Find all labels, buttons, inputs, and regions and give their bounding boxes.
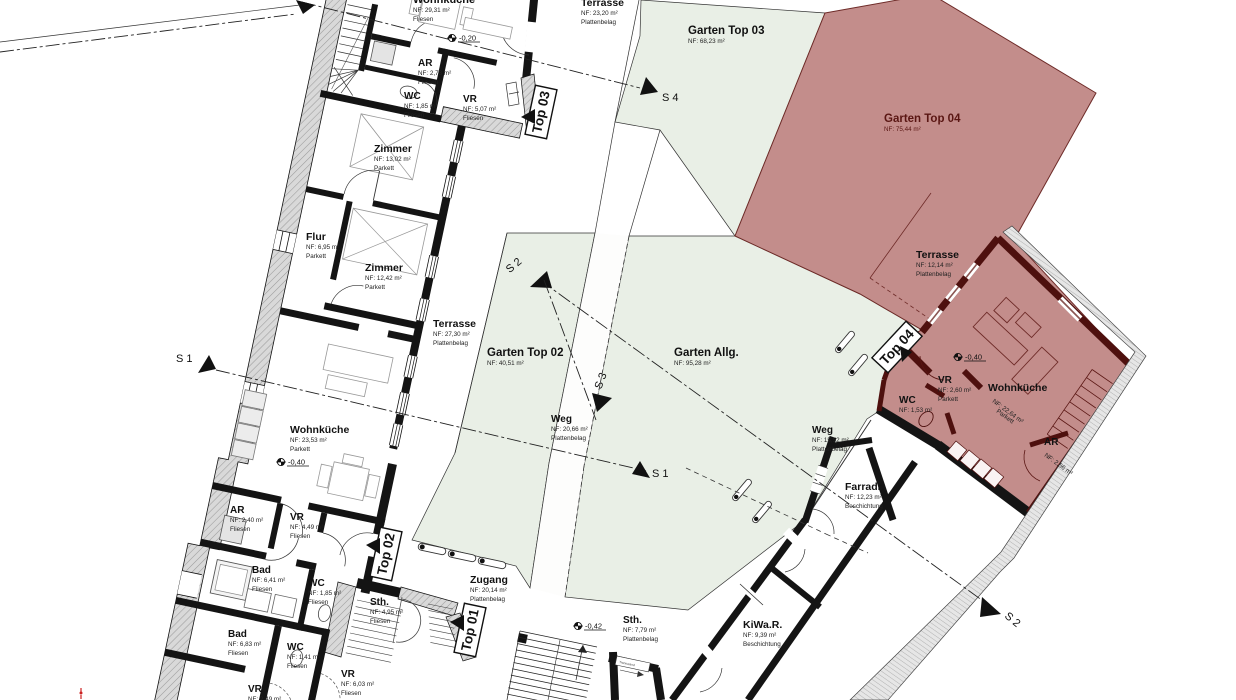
svg-text:NF: 2,49 m²: NF: 2,49 m² [248, 696, 281, 700]
svg-text:Plattenbelag: Plattenbelag [916, 271, 952, 278]
svg-text:Fliesen: Fliesen [252, 586, 273, 593]
svg-text:Fliesen: Fliesen [404, 112, 425, 119]
svg-text:NF: 12,14 m²: NF: 12,14 m² [916, 262, 953, 269]
svg-text:WC: WC [404, 91, 421, 102]
svg-text:Wohnküche: Wohnküche [413, 0, 475, 6]
svg-text:VR: VR [463, 94, 478, 105]
svg-text:NF: 20,66 m²: NF: 20,66 m² [551, 426, 588, 433]
svg-text:Terrasse: Terrasse [916, 249, 959, 261]
svg-text:NF: 23,53 m²: NF: 23,53 m² [290, 437, 327, 444]
svg-text:Fliesen: Fliesen [308, 599, 329, 606]
svg-text:Fliesen: Fliesen [463, 115, 484, 122]
svg-text:WC: WC [899, 395, 916, 406]
svg-text:Weg: Weg [812, 425, 833, 436]
svg-text:NF: 12,23 m²: NF: 12,23 m² [845, 494, 882, 501]
svg-text:NF: 6,03 m²: NF: 6,03 m² [341, 681, 374, 688]
svg-text:NF: 4,95 m²: NF: 4,95 m² [370, 609, 403, 616]
svg-text:Fliesen: Fliesen [341, 690, 362, 697]
svg-text:NF: 6,95 m²: NF: 6,95 m² [306, 244, 339, 251]
svg-text:Zugang: Zugang [470, 574, 508, 586]
svg-text:Plattenbelag: Plattenbelag [812, 446, 848, 453]
svg-text:VR: VR [341, 669, 356, 680]
svg-text:NF: 15,52 m²: NF: 15,52 m² [812, 437, 849, 444]
svg-text:Garten Top 04: Garten Top 04 [884, 113, 961, 125]
svg-text:NF: 6,83 m²: NF: 6,83 m² [228, 641, 261, 648]
svg-text:NF: 2,73 m²: NF: 2,73 m² [418, 70, 451, 77]
svg-text:NF: 1,53 m²: NF: 1,53 m² [899, 407, 932, 414]
svg-text:Wohnküche: Wohnküche [290, 424, 349, 436]
svg-text:WC: WC [308, 578, 325, 589]
svg-text:AR: AR [418, 58, 433, 69]
svg-text:Weg: Weg [551, 414, 572, 425]
svg-text:AR: AR [1044, 437, 1059, 448]
svg-text:NF: 5,07 m²: NF: 5,07 m² [463, 106, 496, 113]
svg-text:S 1: S 1 [652, 468, 669, 480]
svg-text:-0,20: -0,20 [459, 34, 476, 43]
svg-text:Garten Allg.: Garten Allg. [674, 347, 739, 359]
svg-text:Fliesen: Fliesen [290, 533, 311, 540]
svg-text:NF: 68,23 m²: NF: 68,23 m² [688, 38, 725, 45]
svg-text:NF: 1,85 m²: NF: 1,85 m² [308, 590, 341, 597]
svg-text:Beschichtung: Beschichtung [845, 503, 883, 510]
svg-text:Plattenbelag: Plattenbelag [433, 340, 469, 347]
svg-text:NF: 13,02 m²: NF: 13,02 m² [374, 156, 411, 163]
svg-text:Fliesen: Fliesen [418, 79, 439, 86]
svg-text:NF: 75,44 m²: NF: 75,44 m² [884, 126, 921, 133]
svg-text:AR: AR [230, 505, 245, 516]
svg-text:NF: 9,39 m²: NF: 9,39 m² [743, 632, 776, 639]
svg-text:Flur: Flur [306, 231, 326, 243]
svg-text:Zimmer: Zimmer [374, 143, 412, 155]
svg-text:Parkett: Parkett [938, 396, 958, 403]
svg-text:NF: 20,14 m²: NF: 20,14 m² [470, 587, 507, 594]
svg-text:NF: 95,28 m²: NF: 95,28 m² [674, 360, 711, 367]
svg-text:NF: 2,60 m²: NF: 2,60 m² [938, 387, 971, 394]
svg-text:Fliesen: Fliesen [228, 650, 249, 657]
svg-text:VR: VR [938, 375, 953, 386]
svg-text:Wohnküche: Wohnküche [988, 382, 1047, 394]
svg-text:Plattenbelag: Plattenbelag [470, 596, 506, 603]
svg-text:Fliesen: Fliesen [230, 526, 251, 533]
svg-text:-0,40: -0,40 [288, 458, 305, 467]
svg-text:-0,40: -0,40 [965, 353, 982, 362]
svg-text:Terrasse: Terrasse [581, 0, 624, 9]
svg-text:Fliesen: Fliesen [413, 16, 434, 23]
svg-text:Sth.: Sth. [370, 597, 389, 608]
svg-text:S 1: S 1 [176, 353, 193, 365]
svg-text:VR: VR [248, 684, 263, 695]
svg-text:Plattenbelag: Plattenbelag [581, 19, 617, 26]
svg-text:NF: 2,40 m²: NF: 2,40 m² [230, 517, 263, 524]
svg-text:KiWa.R.: KiWa.R. [743, 619, 782, 631]
svg-text:Parkett: Parkett [306, 253, 326, 260]
svg-text:Bad: Bad [228, 629, 247, 640]
svg-text:S 4: S 4 [662, 92, 679, 104]
svg-text:WC: WC [287, 642, 304, 653]
svg-text:Plattenbelag: Plattenbelag [551, 435, 587, 442]
svg-text:Farradr.: Farradr. [845, 481, 884, 493]
svg-text:NF: 29,31 m²: NF: 29,31 m² [413, 7, 450, 14]
svg-text:NF: 23,20 m²: NF: 23,20 m² [581, 10, 618, 17]
svg-text:Zimmer: Zimmer [365, 262, 403, 274]
svg-text:NF: 7,79 m²: NF: 7,79 m² [623, 627, 656, 634]
svg-text:Plattenbelag: Plattenbelag [623, 636, 659, 643]
svg-text:NF: 1,41 m²: NF: 1,41 m² [287, 654, 320, 661]
svg-text:NF: 4,49 m²: NF: 4,49 m² [290, 524, 323, 531]
svg-text:Fliesen: Fliesen [287, 663, 308, 670]
svg-text:NF: 12,42 m²: NF: 12,42 m² [365, 275, 402, 282]
svg-text:Beschichtung: Beschichtung [743, 641, 781, 648]
svg-text:Fliesen: Fliesen [370, 618, 391, 625]
svg-text:Bad: Bad [252, 565, 271, 576]
svg-text:Garten Top 03: Garten Top 03 [688, 25, 764, 37]
svg-text:NF: 1,85 m²: NF: 1,85 m² [404, 103, 437, 110]
svg-text:NF: 40,51 m²: NF: 40,51 m² [487, 360, 524, 367]
svg-text:Parkett: Parkett [365, 284, 385, 291]
svg-text:VR: VR [290, 512, 305, 523]
svg-text:NF: 6,41 m²: NF: 6,41 m² [252, 577, 285, 584]
svg-text:Parkett: Parkett [374, 165, 394, 172]
svg-text:Garten Top 02: Garten Top 02 [487, 347, 563, 359]
svg-text:Terrasse: Terrasse [433, 318, 476, 330]
svg-text:NF: 27,30 m²: NF: 27,30 m² [433, 331, 470, 338]
svg-text:Sth.: Sth. [623, 615, 642, 626]
svg-text:-0,42: -0,42 [585, 622, 602, 631]
svg-text:Parkett: Parkett [290, 446, 310, 453]
